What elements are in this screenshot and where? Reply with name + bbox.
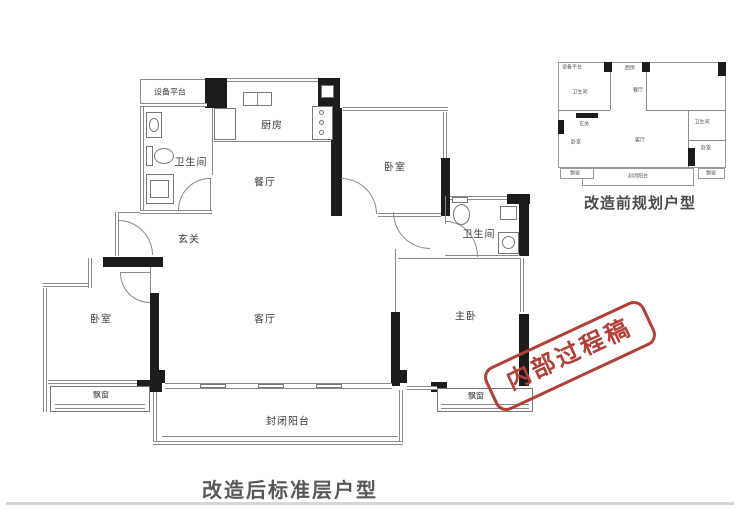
mini-label: 卫生间 — [572, 89, 587, 96]
burner-icon — [319, 130, 324, 135]
window-line — [43, 288, 47, 412]
bay-window-sill — [55, 404, 145, 405]
wall-line — [150, 267, 151, 293]
door-arc — [120, 273, 150, 303]
wall-line — [43, 283, 88, 287]
floor-plan-page: 设备平台 卫生间 厨房 餐厅 卧室 玄关 卫生间 卧室 客厅 主卧 飘窗 飘窗 … — [0, 0, 740, 510]
sill-line — [407, 386, 437, 390]
wall-line — [395, 249, 396, 312]
window-line — [343, 107, 448, 111]
window-line — [520, 258, 524, 312]
wall-line — [88, 258, 92, 288]
door-arc — [341, 178, 377, 214]
balcony-wall — [153, 441, 403, 445]
mini-wall-segment — [718, 62, 726, 76]
door-leaf — [118, 220, 119, 255]
mini-plan-caption: 改造前规划户型 — [560, 192, 720, 213]
window-line — [140, 103, 207, 107]
wall-line — [445, 196, 446, 224]
mini-wall-segment — [642, 62, 650, 72]
sink-icon — [500, 206, 517, 220]
balcony-wall — [399, 390, 403, 441]
wall-line — [140, 210, 212, 214]
balcony-wall — [153, 390, 157, 442]
toilet-icon — [154, 148, 174, 164]
door-arc — [178, 178, 210, 210]
mini-wall — [688, 140, 726, 141]
room-label-bay-left: 飘窗 — [93, 390, 109, 401]
wall-line — [212, 108, 213, 175]
main-plan-caption: 改造后标准层户型 — [180, 474, 400, 503]
wall-segment — [392, 370, 407, 383]
shower-inner — [150, 180, 169, 198]
mini-wall-segment — [558, 120, 564, 134]
wall-segment — [103, 257, 163, 267]
mini-label: 厨房 — [625, 65, 635, 72]
mini-label: 客厅 — [635, 137, 645, 144]
toilet-tank-icon — [146, 146, 153, 166]
window-pane — [200, 384, 226, 388]
mini-label: 设备平台 — [562, 64, 582, 71]
mini-wall-segment — [688, 148, 695, 166]
wall-segment — [205, 78, 227, 108]
room-label-kitchen: 厨房 — [261, 117, 283, 132]
mini-wall — [646, 110, 726, 111]
entry-door-arc — [118, 220, 153, 255]
window-line — [227, 78, 318, 82]
mini-label: 卧室 — [701, 145, 711, 152]
door-leaf — [210, 178, 211, 210]
mini-label: 封闭阳台 — [628, 173, 648, 180]
mini-label: 卧室 — [571, 139, 581, 146]
room-label-bedroom-top: 卧室 — [384, 159, 406, 174]
room-label-dining: 餐厅 — [254, 174, 276, 189]
window-pane — [316, 384, 342, 388]
window-line — [140, 107, 144, 212]
balcony-inner-line — [162, 436, 398, 437]
draft-stamp: 内部过程稿 — [480, 297, 660, 415]
wall-line — [398, 258, 445, 259]
burner-icon — [319, 120, 324, 125]
kitchen-sink-divider — [257, 93, 258, 105]
room-label-balcony: 封闭阳台 — [266, 413, 310, 428]
room-label-bay-right: 飘窗 — [468, 391, 484, 402]
door-arc — [393, 212, 430, 249]
washer-drum — [502, 236, 515, 249]
mini-label: 飘窗 — [706, 170, 716, 177]
window-pane — [258, 384, 284, 388]
wall-segment — [150, 293, 159, 380]
wall-line — [140, 79, 206, 80]
fridge-icon — [214, 108, 236, 140]
door-leaf — [120, 272, 150, 273]
room-label-bathroom-right: 卫生间 — [463, 226, 496, 241]
mini-label: 餐厅 — [633, 87, 643, 94]
mini-wall-segment — [576, 113, 598, 118]
bay-window-sill — [55, 408, 145, 409]
wall-line — [48, 380, 137, 384]
room-label-equipment-platform: 设备平台 — [154, 87, 186, 98]
mini-wall-segment — [604, 62, 612, 72]
duct-shaft — [321, 85, 334, 98]
counter-line — [214, 141, 331, 142]
room-label-entry: 玄关 — [178, 231, 200, 246]
toilet-icon — [453, 204, 470, 225]
mini-label: 卫生间 — [694, 119, 709, 126]
room-label-bathroom-left: 卫生间 — [175, 154, 208, 169]
wall-segment — [519, 204, 529, 256]
toilet-tank-icon — [452, 197, 468, 203]
bay-window-sill — [441, 408, 529, 409]
bottom-divider — [6, 502, 734, 505]
room-label-master: 主卧 — [455, 308, 477, 323]
burner-icon — [319, 110, 324, 115]
mini-label: 飘窗 — [570, 170, 580, 177]
basin-icon — [149, 118, 159, 132]
room-label-living: 客厅 — [254, 311, 276, 326]
mini-label: 玄关 — [579, 121, 589, 128]
mini-wall — [558, 110, 610, 111]
room-label-bedroom-left: 卧室 — [90, 311, 112, 326]
window-line — [443, 112, 447, 158]
wall-segment — [507, 194, 530, 204]
